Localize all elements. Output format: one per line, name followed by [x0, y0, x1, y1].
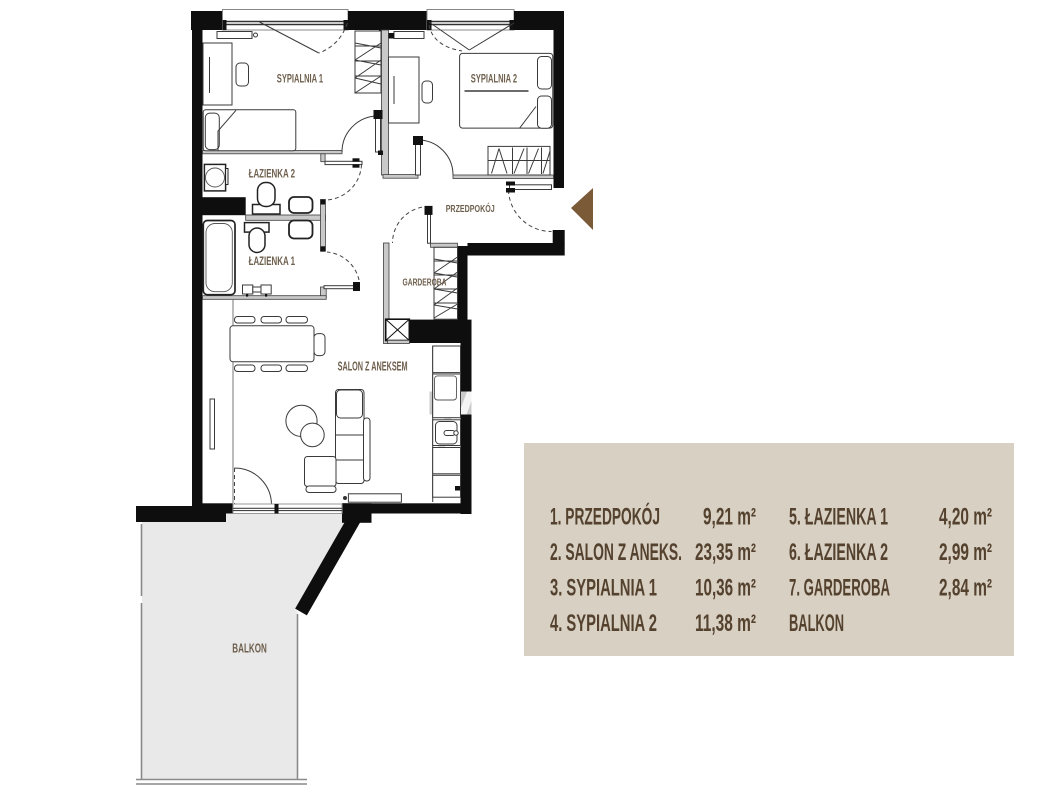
svg-text:2,84 m²: 2,84 m²	[939, 575, 992, 602]
svg-text:SALON Z ANEKSEM: SALON Z ANEKSEM	[338, 359, 408, 374]
svg-text:7. GARDEROBA: 7. GARDEROBA	[789, 575, 890, 602]
svg-text:5. ŁAZIENKA 1: 5. ŁAZIENKA 1	[789, 504, 888, 531]
svg-text:2,99 m²: 2,99 m²	[939, 539, 992, 566]
svg-text:11,38 m²: 11,38 m²	[695, 610, 756, 637]
svg-text:PRZEDPOKÓJ: PRZEDPOKÓJ	[446, 202, 495, 215]
svg-text:6. ŁAZIENKA 2: 6. ŁAZIENKA 2	[789, 539, 888, 566]
svg-text:4. SYPIALNIA 2: 4. SYPIALNIA 2	[550, 610, 657, 637]
svg-text:GARDEROBA: GARDEROBA	[403, 278, 447, 289]
svg-text:4,20 m²: 4,20 m²	[939, 504, 992, 531]
svg-text:BALKON: BALKON	[232, 641, 266, 656]
svg-text:BALKON: BALKON	[789, 610, 844, 637]
svg-text:ŁAZIENKA 1: ŁAZIENKA 1	[249, 255, 296, 268]
svg-text:3. SYPIALNIA 1: 3. SYPIALNIA 1	[550, 575, 657, 602]
svg-text:ŁAZIENKA 2: ŁAZIENKA 2	[249, 168, 296, 181]
svg-text:9,21 m²: 9,21 m²	[703, 504, 756, 531]
svg-text:10,36 m²: 10,36 m²	[695, 575, 756, 602]
svg-text:23,35 m²: 23,35 m²	[695, 539, 756, 566]
svg-text:2. SALON Z ANEKS.: 2. SALON Z ANEKS.	[550, 539, 682, 566]
svg-text:1. PRZEDPOKÓJ: 1. PRZEDPOKÓJ	[550, 503, 660, 531]
svg-text:SYPIALNIA 1: SYPIALNIA 1	[277, 73, 324, 86]
svg-text:SYPIALNIA 2: SYPIALNIA 2	[471, 73, 518, 86]
